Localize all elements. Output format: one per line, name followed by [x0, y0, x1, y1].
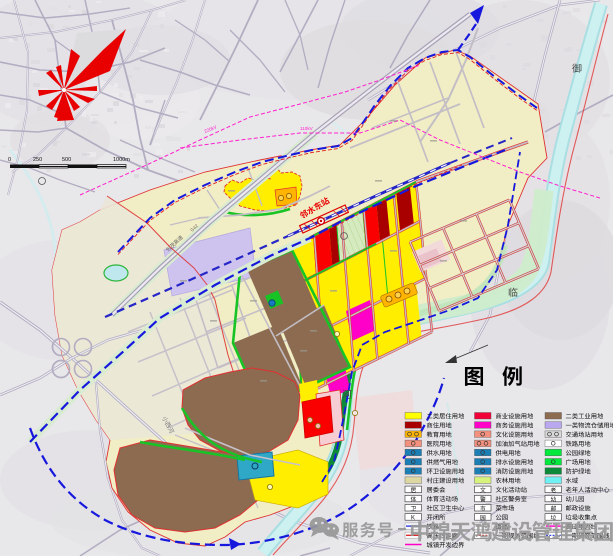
svg-text:0: 0 — [8, 157, 11, 163]
svg-text:500: 500 — [62, 157, 71, 163]
svg-text:K: K — [411, 515, 415, 521]
svg-text:250: 250 — [33, 157, 42, 163]
svg-text:110kV: 110kV — [300, 126, 314, 131]
svg-text:1000m: 1000m — [113, 157, 130, 163]
